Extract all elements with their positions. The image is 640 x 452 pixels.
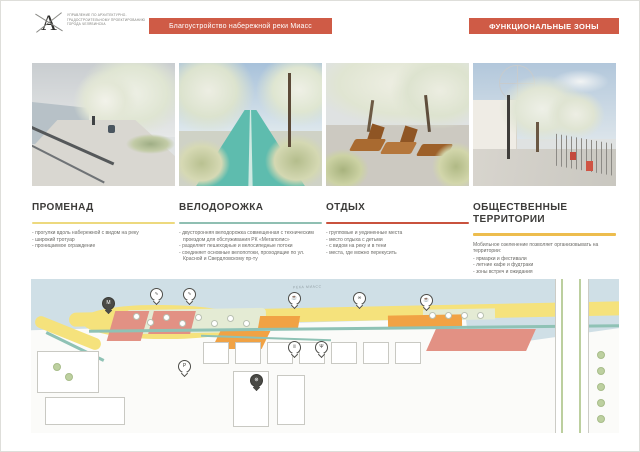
pin-restroom-icon: ii bbox=[288, 341, 301, 354]
zone-title: ПРОМЕНАД bbox=[32, 202, 175, 214]
zone-bullets: прогулки вдоль набережной с видом на рек… bbox=[32, 230, 175, 250]
zone-bullets: двусторонняя велодорожка совмещенная с т… bbox=[179, 230, 322, 263]
pin-parking-icon: P bbox=[178, 360, 191, 373]
street-tree bbox=[597, 351, 605, 359]
zone-title: ОТДЫХ bbox=[326, 202, 469, 214]
person bbox=[92, 116, 95, 125]
bullet: прогулки вдоль набережной с видом на рек… bbox=[32, 230, 175, 237]
bullet: с видом на реку и в тени bbox=[326, 243, 469, 250]
building-footprint bbox=[331, 342, 357, 364]
building-footprint bbox=[203, 342, 229, 364]
road-median bbox=[579, 279, 581, 433]
pin-bike-icon: ∞ bbox=[353, 292, 366, 305]
tree bbox=[547, 90, 604, 139]
building-footprint bbox=[37, 351, 99, 393]
bullet: места, где можно перекусить bbox=[326, 250, 469, 257]
photo-bike-path bbox=[179, 63, 322, 186]
zone-title: ОБЩЕСТВЕННЫЕ ТЕРРИТОРИИ bbox=[473, 202, 616, 225]
bullet: разделяет пешеходные и велосипедные пото… bbox=[179, 243, 322, 250]
zone-columns: ПРОМЕНАД прогулки вдоль набережной с вид… bbox=[32, 63, 618, 275]
logo-letter-icon: А bbox=[37, 9, 61, 37]
building-footprint bbox=[395, 342, 421, 364]
red-bench bbox=[586, 161, 593, 171]
tree-dot bbox=[227, 315, 234, 322]
grass bbox=[265, 134, 322, 186]
bullet: широкий тротуар bbox=[32, 237, 175, 244]
presentation-board: А УПРАВЛЕНИЕ ПО АРХИТЕКТУРНО-ГРАДОСТРОИТ… bbox=[0, 0, 640, 452]
tree-trunk bbox=[536, 122, 539, 152]
building-footprint bbox=[45, 397, 125, 425]
road-median bbox=[561, 279, 563, 433]
tree-dot bbox=[477, 312, 484, 319]
pin-lounge-icon: ∿ bbox=[183, 288, 196, 301]
street-tree bbox=[597, 367, 605, 375]
bullet: место отдыха с детьми bbox=[326, 237, 469, 244]
zone-rule bbox=[179, 222, 322, 225]
zone-rule bbox=[326, 222, 469, 225]
pole bbox=[288, 73, 291, 147]
plant bbox=[432, 142, 469, 186]
zone-bullets: ярмарки и фестивали летние кафе и фудтра… bbox=[473, 256, 616, 276]
photo-rest bbox=[326, 63, 469, 186]
zone-bike-path: ВЕЛОДОРОЖКА двусторонняя велодорожка сов… bbox=[179, 63, 322, 275]
bullet: групповые и уединенные места bbox=[326, 230, 469, 237]
sheet-title-banner: ФУНКЦИОНАЛЬНЫЕ ЗОНЫ bbox=[469, 18, 619, 34]
building-footprint bbox=[277, 375, 305, 425]
tree-dot bbox=[429, 312, 436, 319]
tree-dot bbox=[179, 320, 186, 327]
tree-dot bbox=[243, 320, 250, 327]
tree-dot bbox=[163, 314, 170, 321]
street-tree bbox=[597, 415, 605, 423]
master-plan-map: РЕКА МИАСС bbox=[31, 279, 619, 433]
zone-title: ВЕЛОДОРОЖКА bbox=[179, 202, 322, 214]
shrub bbox=[126, 134, 175, 154]
bullet: летние кафе и фудтраки bbox=[473, 262, 616, 269]
pin-ferris-wheel-icon: ⊛ bbox=[250, 374, 263, 387]
project-title-banner: Благоустройство набережной реки Миасс bbox=[149, 18, 332, 34]
bullet: ярмарки и фестивали bbox=[473, 256, 616, 263]
street-tree bbox=[597, 383, 605, 391]
plant bbox=[326, 149, 369, 186]
photo-promenade bbox=[32, 63, 175, 186]
tree-dot bbox=[195, 314, 202, 321]
pin-cafe-icon: ☕ bbox=[420, 294, 433, 307]
pin-m-icon: М bbox=[102, 297, 115, 310]
building-footprint bbox=[235, 342, 261, 364]
street-tree bbox=[597, 399, 605, 407]
lamp-post bbox=[507, 95, 510, 159]
red-bench bbox=[570, 152, 576, 160]
building-footprint bbox=[363, 342, 389, 364]
rest-zone bbox=[426, 329, 536, 351]
zone-intro: Мобильное озеленение позволяет организов… bbox=[473, 242, 616, 255]
logo: А УПРАВЛЕНИЕ ПО АРХИТЕКТУРНО-ГРАДОСТРОИТ… bbox=[37, 9, 147, 39]
tree-dot bbox=[461, 312, 468, 319]
zone-rest: ОТДЫХ групповые и уединенные места место… bbox=[326, 63, 469, 275]
street-tree bbox=[53, 363, 61, 371]
bullet: проницаемое ограждение bbox=[32, 243, 175, 250]
bullet: зоны встреч и ожидания bbox=[473, 269, 616, 276]
tree-dot bbox=[133, 313, 140, 320]
photo-public-territories bbox=[473, 63, 616, 186]
grass bbox=[179, 139, 230, 186]
zone-public-territories: ОБЩЕСТВЕННЫЕ ТЕРРИТОРИИ Мобильное озелен… bbox=[473, 63, 616, 275]
logo-org-text: УПРАВЛЕНИЕ ПО АРХИТЕКТУРНО-ГРАДОСТРОИТЕЛ… bbox=[67, 13, 147, 27]
pin-food-icon: Ψ bbox=[315, 341, 328, 354]
pin-cafe-icon: ☕ bbox=[288, 292, 301, 305]
zone-rule bbox=[32, 222, 175, 225]
pin-lounge-icon: ∿ bbox=[150, 288, 163, 301]
tree-dot bbox=[445, 312, 452, 319]
street-tree bbox=[65, 373, 73, 381]
bullet: двусторонняя велодорожка совмещенная с т… bbox=[179, 230, 322, 243]
stroller bbox=[108, 125, 115, 133]
zone-promenade: ПРОМЕНАД прогулки вдоль набережной с вид… bbox=[32, 63, 175, 275]
tree-dot bbox=[147, 319, 154, 326]
tree-dot bbox=[211, 320, 218, 327]
zone-rule bbox=[473, 233, 616, 236]
bullet: соединяет основные велопотоки, проходящи… bbox=[179, 250, 322, 263]
zone-bullets: групповые и уединенные места место отдых… bbox=[326, 230, 469, 256]
